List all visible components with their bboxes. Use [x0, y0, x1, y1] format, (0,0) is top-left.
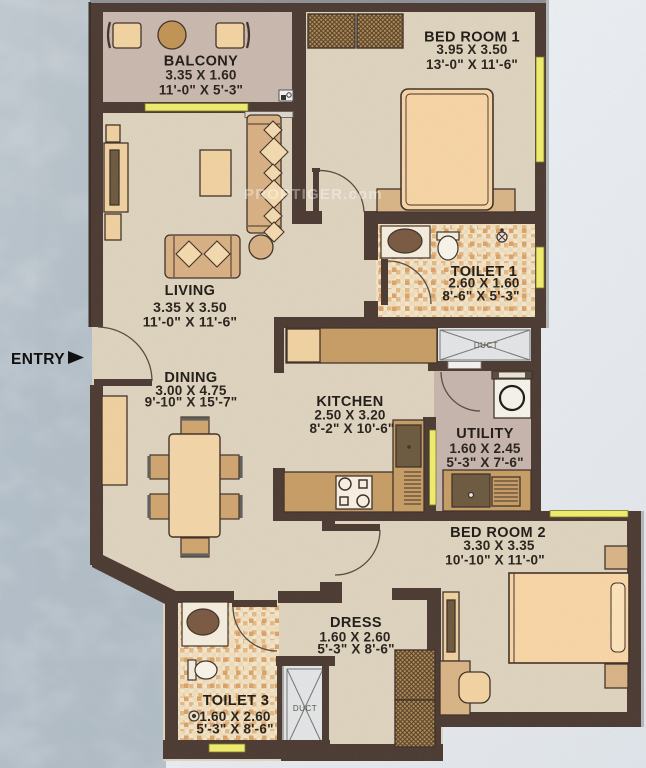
svg-text:8'-2" X 10'-6": 8'-2" X 10'-6" [309, 421, 394, 436]
svg-text:5'-3" X 8'-6": 5'-3" X 8'-6" [196, 722, 273, 737]
svg-text:5'-3" X 8'-6": 5'-3" X 8'-6" [317, 642, 394, 657]
svg-text:10'-10" X 11'-0": 10'-10" X 11'-0" [445, 553, 545, 568]
svg-text:3.35 X 1.60: 3.35 X 1.60 [165, 68, 236, 83]
svg-text:TOILET 3: TOILET 3 [203, 693, 270, 709]
svg-text:11'-0" X 5'-3": 11'-0" X 5'-3" [159, 83, 243, 98]
svg-text:8'-6" X 5'-3": 8'-6" X 5'-3" [442, 289, 519, 304]
svg-text:1.60 X 2.45: 1.60 X 2.45 [449, 441, 521, 456]
svg-text:3.30 X 3.35: 3.30 X 3.35 [463, 538, 535, 553]
svg-text:13'-0" X 11'-6": 13'-0" X 11'-6" [426, 57, 518, 72]
svg-text:DUCT: DUCT [293, 704, 317, 713]
svg-text:PROPTIGER.com: PROPTIGER.com [244, 186, 383, 203]
svg-text:ENTRY: ENTRY [11, 351, 65, 368]
svg-text:LIVING: LIVING [165, 283, 216, 299]
svg-text:9'-10" X 15'-7": 9'-10" X 15'-7" [145, 395, 238, 410]
svg-text:DUCT: DUCT [474, 341, 498, 350]
svg-text:3.95 X 3.50: 3.95 X 3.50 [436, 42, 507, 57]
svg-text:5'-3" X 7'-6": 5'-3" X 7'-6" [446, 455, 523, 470]
svg-text:UTILITY: UTILITY [456, 426, 514, 442]
svg-text:11'-0" X 11'-6": 11'-0" X 11'-6" [143, 314, 238, 330]
